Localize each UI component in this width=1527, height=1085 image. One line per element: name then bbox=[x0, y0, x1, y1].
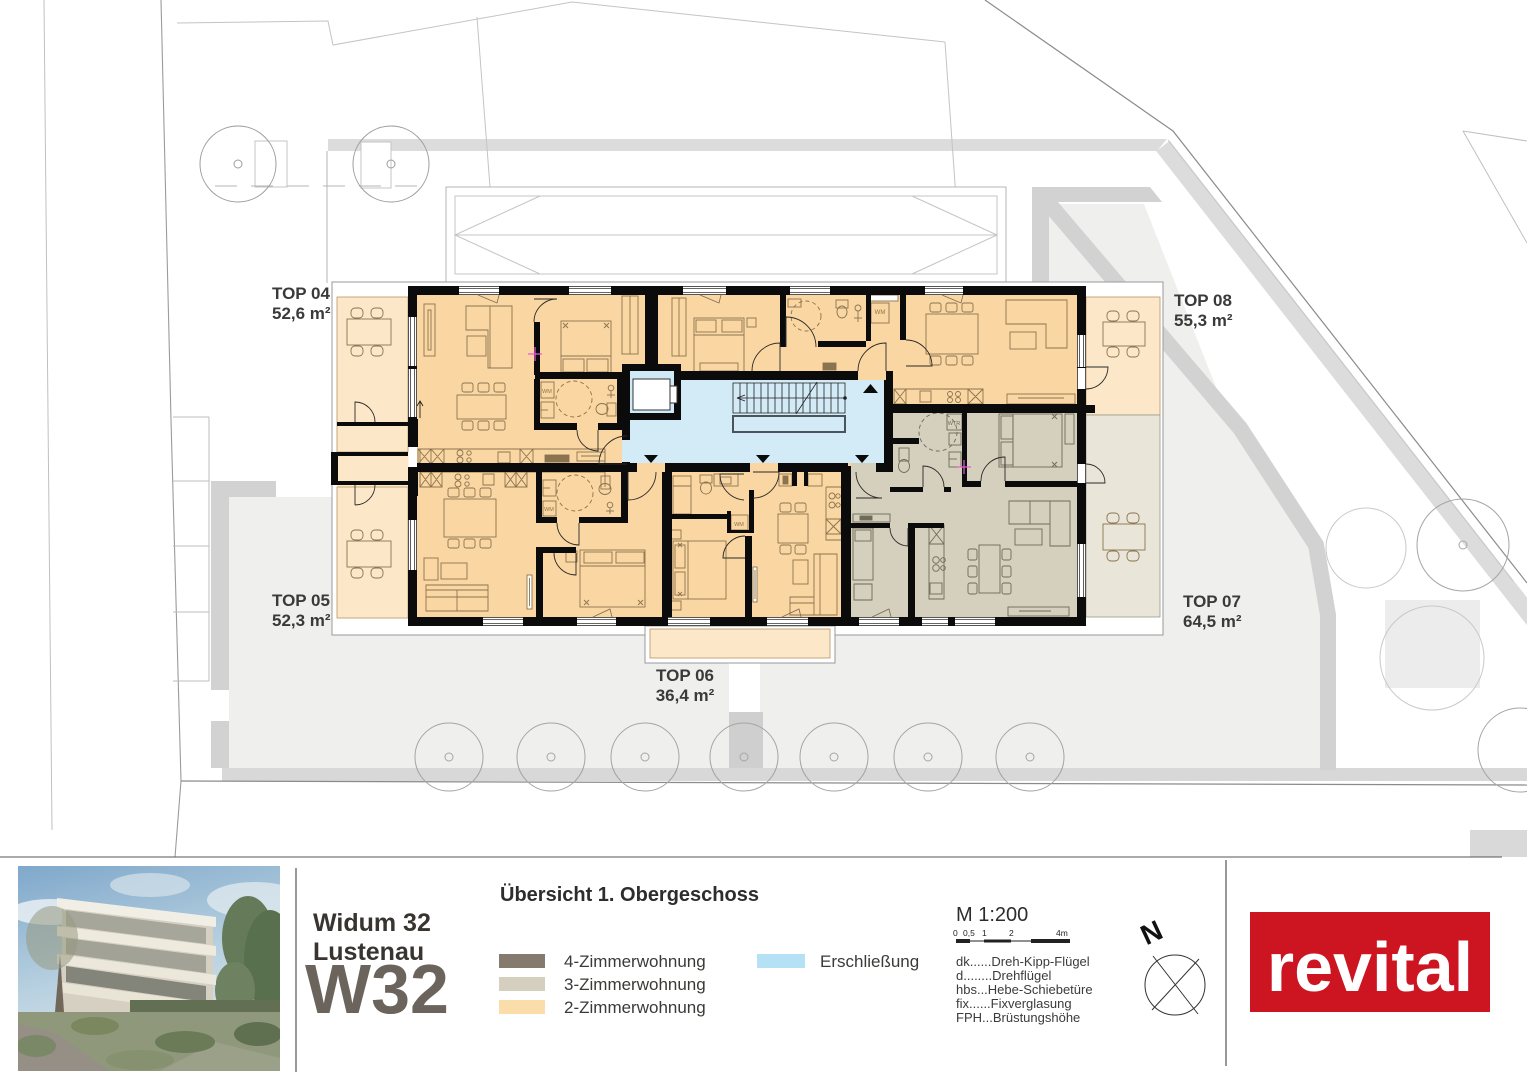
svg-text:Übersicht 1. Obergeschoss: Übersicht 1. Obergeschoss bbox=[500, 883, 759, 906]
svg-text:Widum 32: Widum 32 bbox=[313, 909, 431, 937]
svg-text:dk......Dreh-Kipp-Flügel: dk......Dreh-Kipp-Flügel bbox=[956, 954, 1090, 969]
svg-text:revital: revital bbox=[1267, 928, 1473, 1006]
svg-text:WTR: WTR bbox=[948, 421, 961, 427]
svg-text:55,3 m²: 55,3 m² bbox=[1174, 311, 1233, 330]
svg-text:TOP 07: TOP 07 bbox=[1183, 592, 1241, 611]
svg-text:M 1:200: M 1:200 bbox=[956, 904, 1028, 926]
svg-text:WM: WM bbox=[734, 522, 744, 528]
svg-text:TOP 08: TOP 08 bbox=[1174, 291, 1232, 310]
svg-text:TOP 06: TOP 06 bbox=[656, 666, 714, 685]
svg-text:3-Zimmerwohnung: 3-Zimmerwohnung bbox=[564, 975, 706, 994]
svg-text:36,4 m²: 36,4 m² bbox=[656, 686, 715, 705]
svg-text:TOP 05: TOP 05 bbox=[272, 591, 330, 610]
svg-text:WM: WM bbox=[544, 507, 554, 513]
svg-text:WM: WM bbox=[542, 389, 552, 395]
svg-text:Erschließung: Erschließung bbox=[820, 952, 919, 971]
svg-text:64,5 m²: 64,5 m² bbox=[1183, 612, 1242, 631]
svg-text:FPH...Brüstungshöhe: FPH...Brüstungshöhe bbox=[956, 1010, 1080, 1025]
svg-text:hbs...Hebe-Schiebetüre: hbs...Hebe-Schiebetüre bbox=[956, 982, 1093, 997]
svg-text:2-Zimmerwohnung: 2-Zimmerwohnung bbox=[564, 998, 706, 1017]
svg-text:1: 1 bbox=[982, 928, 987, 938]
svg-text:TOP 04: TOP 04 bbox=[272, 284, 331, 303]
svg-text:52,3 m²: 52,3 m² bbox=[272, 611, 331, 630]
svg-text:W32: W32 bbox=[305, 950, 449, 1028]
svg-text:52,6 m²: 52,6 m² bbox=[272, 304, 331, 323]
svg-text:fix......Fixverglasung: fix......Fixverglasung bbox=[956, 996, 1072, 1011]
svg-text:0,5: 0,5 bbox=[963, 928, 975, 938]
svg-text:4-Zimmerwohnung: 4-Zimmerwohnung bbox=[564, 952, 706, 971]
svg-text:4m: 4m bbox=[1056, 928, 1068, 938]
svg-text:0: 0 bbox=[953, 928, 958, 938]
svg-text:2: 2 bbox=[1009, 928, 1014, 938]
svg-text:WM: WM bbox=[875, 310, 886, 316]
svg-text:d........Drehflügel: d........Drehflügel bbox=[956, 968, 1051, 983]
